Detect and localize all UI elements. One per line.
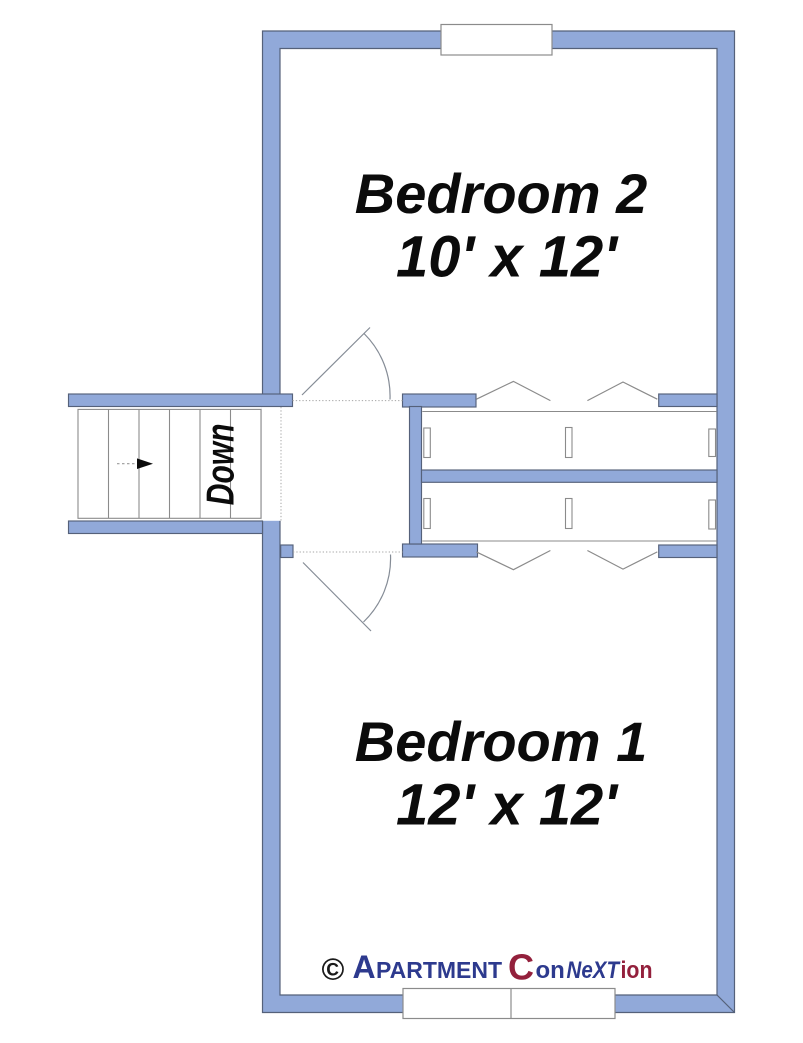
svg-text:ion: ion bbox=[621, 957, 653, 984]
svg-text:Bedroom 2: Bedroom 2 bbox=[355, 162, 648, 225]
svg-text:Down: Down bbox=[200, 424, 243, 506]
svg-text:A: A bbox=[353, 949, 376, 985]
svg-text:on: on bbox=[536, 957, 565, 984]
svg-text:C: C bbox=[508, 947, 534, 988]
svg-text:NeXT: NeXT bbox=[567, 957, 621, 984]
svg-text:Bedroom 1: Bedroom 1 bbox=[355, 710, 648, 773]
svg-text:12' x 12': 12' x 12' bbox=[396, 773, 619, 838]
svg-text:10' x 12': 10' x 12' bbox=[396, 225, 619, 290]
svg-text:PARTMENT: PARTMENT bbox=[376, 957, 502, 983]
svg-text:©: © bbox=[322, 952, 345, 987]
